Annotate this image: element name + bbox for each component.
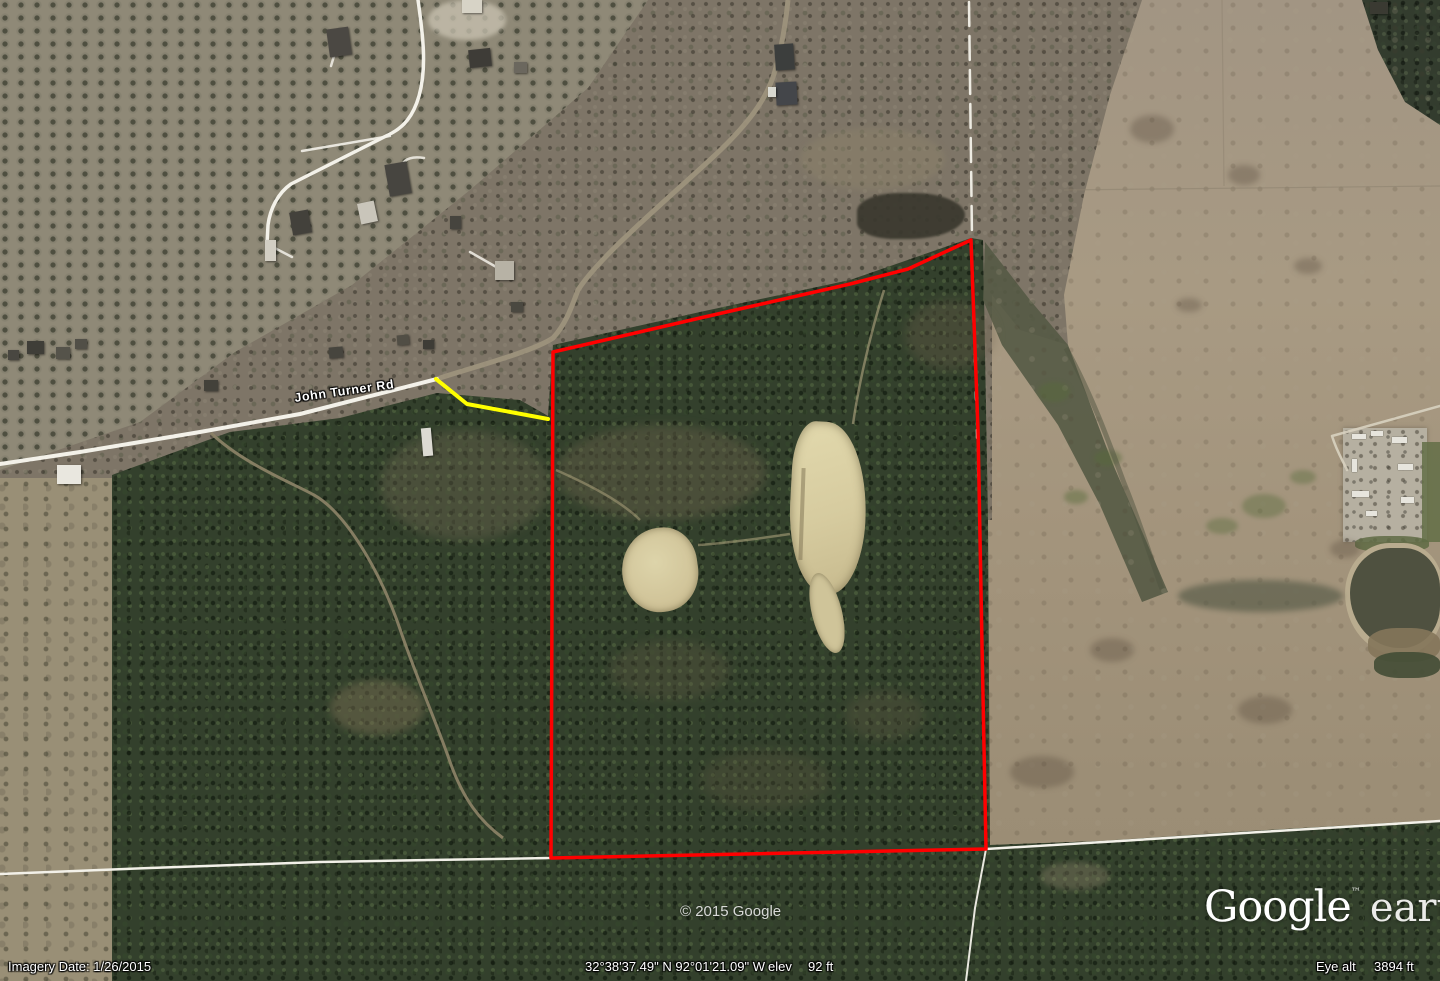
building [450,216,461,229]
building [774,43,795,70]
building [56,347,70,359]
property-track [556,470,640,520]
building [514,62,527,73]
building [468,48,492,68]
map-viewport[interactable]: John Turner Rd © 2015 Google Google™eart… [0,0,1440,981]
survey-line-south-east [986,821,1440,849]
elevation-label: elev [768,959,792,974]
copyright-watermark: © 2015 Google [680,903,781,920]
imagery-date: Imagery Date: 1/26/2015 [8,959,151,974]
driveway [470,252,498,268]
access-path-annotation[interactable] [436,379,548,419]
overlay-lines [0,0,1440,981]
logo-trademark: ™ [1351,887,1361,898]
driveway [302,136,390,151]
elevation-value: 92 ft [808,959,833,974]
building [495,261,514,280]
survey-line-north [969,2,972,238]
property-track [853,290,884,424]
status-bar: Imagery Date: 1/26/2015 32°38'37.49" N 9… [0,954,1440,981]
building [768,87,776,97]
building [75,339,87,349]
building [397,334,410,345]
building [27,341,44,354]
building [326,27,352,58]
survey-line-south-west [0,858,551,874]
fence-line [1222,0,1224,186]
building [775,81,797,105]
logo-product: earth [1370,885,1440,931]
coordinates: 32°38'37.49" N 92°01'21.09" W [585,959,765,974]
building [8,350,19,360]
farm-track [1332,406,1440,470]
logo-brand: Google [1204,882,1351,932]
building [423,340,434,349]
property-boundary-annotation[interactable] [551,240,986,858]
building [265,240,276,261]
building [204,380,218,391]
fence-line [1064,186,1440,190]
google-earth-logo: Google™earth [1204,882,1440,932]
building [1370,2,1388,14]
building [511,302,523,312]
building [57,465,81,484]
building [462,0,482,13]
forest-trail [211,433,503,838]
eye-altitude-label: Eye alt [1316,959,1356,974]
building [289,210,312,236]
creek-line [1066,348,1162,589]
eye-altitude-value: 3894 ft [1374,959,1414,974]
building [329,346,344,358]
property-track [698,534,790,545]
